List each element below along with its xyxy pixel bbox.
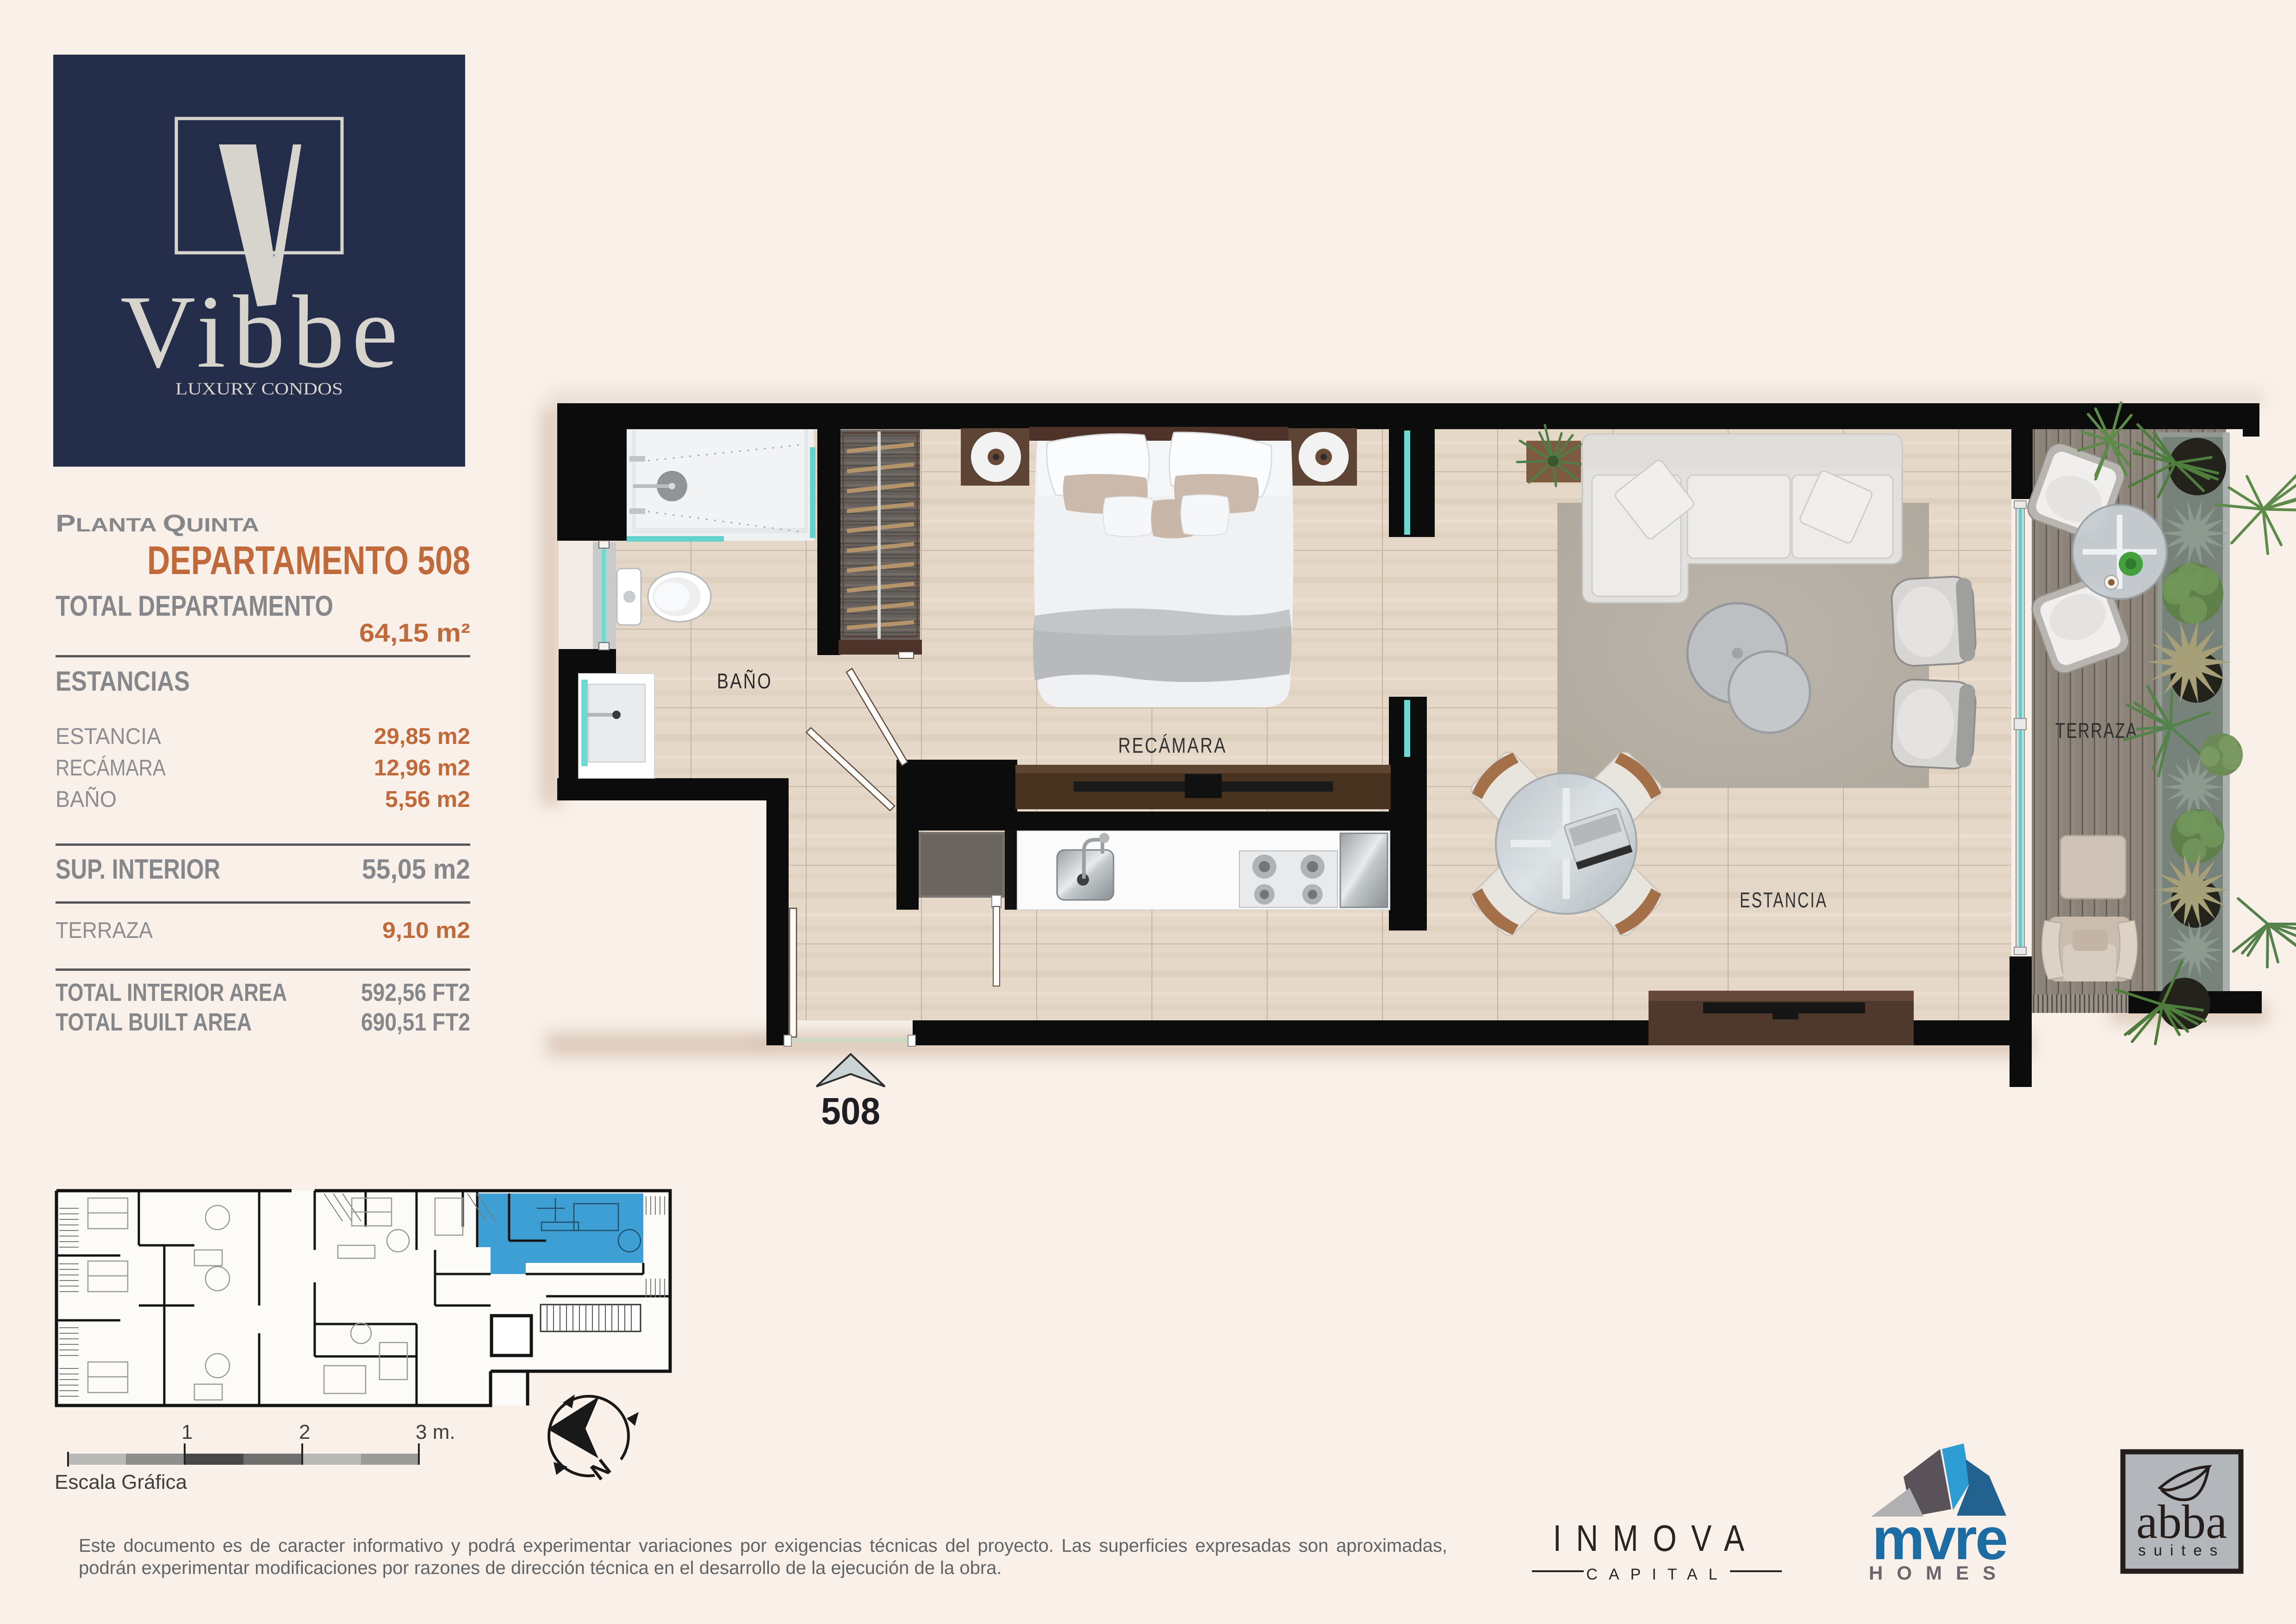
svg-text:SUP. INTERIOR: SUP. INTERIOR	[56, 854, 220, 885]
svg-text:5,56 m2: 5,56 m2	[385, 787, 470, 812]
svg-text:ESTANCIA: ESTANCIA	[56, 724, 161, 749]
svg-text:ESTANCIA: ESTANCIA	[1740, 888, 1828, 912]
svg-text:RECÁMARA: RECÁMARA	[56, 756, 166, 781]
svg-text:9,10 m2: 9,10 m2	[382, 918, 470, 943]
svg-text:PLANTA QUINTA: PLANTA QUINTA	[56, 510, 259, 537]
svg-text:Este documento es de caracter: Este documento es de caracter informativ…	[79, 1536, 1447, 1556]
svg-text:HOMES: HOMES	[1869, 1562, 2010, 1584]
svg-text:RECÁMARA: RECÁMARA	[1118, 733, 1227, 757]
svg-text:LUXURY CONDOS: LUXURY CONDOS	[175, 380, 343, 399]
svg-text:508: 508	[821, 1090, 880, 1132]
svg-text:3 m.: 3 m.	[416, 1421, 455, 1443]
svg-text:INMOVA: INMOVA	[1553, 1518, 1759, 1559]
svg-text:abba: abba	[2136, 1495, 2227, 1549]
svg-text:2: 2	[299, 1421, 310, 1443]
svg-text:64,15 m²: 64,15 m²	[359, 618, 470, 647]
svg-text:ESTANCIAS: ESTANCIAS	[56, 666, 190, 697]
svg-text:DEPARTAMENTO 508: DEPARTAMENTO 508	[147, 538, 470, 583]
svg-text:TERRAZA: TERRAZA	[56, 918, 153, 943]
svg-text:TOTAL INTERIOR AREA: TOTAL INTERIOR AREA	[56, 979, 287, 1006]
svg-text:TOTAL DEPARTAMENTO: TOTAL DEPARTAMENTO	[56, 590, 333, 622]
svg-text:CAPITAL: CAPITAL	[1586, 1566, 1728, 1583]
svg-text:55,05 m2: 55,05 m2	[362, 854, 470, 885]
svg-text:12,96 m2: 12,96 m2	[374, 756, 470, 781]
svg-text:TOTAL BUILT AREA: TOTAL BUILT AREA	[56, 1008, 252, 1036]
svg-text:1: 1	[181, 1421, 193, 1443]
svg-text:BAÑO: BAÑO	[717, 669, 772, 693]
svg-text:690,51 FT2: 690,51 FT2	[361, 1008, 470, 1036]
svg-text:podrán experimentar modificaci: podrán experimentar modificaciones por r…	[79, 1558, 1002, 1578]
svg-text:29,85 m2: 29,85 m2	[374, 724, 470, 749]
svg-text:Escala Gráfica: Escala Gráfica	[55, 1471, 187, 1493]
svg-text:592,56 FT2: 592,56 FT2	[361, 979, 470, 1006]
svg-text:BAÑO: BAÑO	[56, 787, 117, 812]
svg-text:suites: suites	[2138, 1542, 2225, 1559]
svg-text:Vibbe: Vibbe	[120, 274, 398, 389]
